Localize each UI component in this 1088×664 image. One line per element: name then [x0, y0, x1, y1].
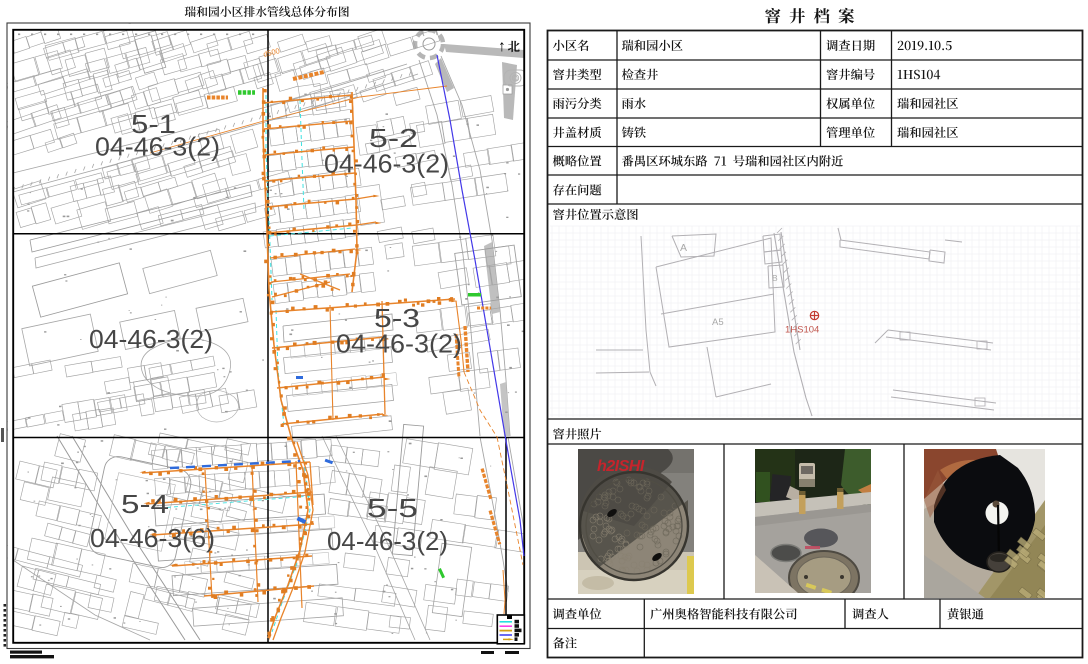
svg-text:5-5: 5-5 — [367, 495, 418, 523]
svg-text:04-46-3(2): 04-46-3(2) — [327, 528, 448, 556]
svg-text:1HS104: 1HS104 — [785, 325, 819, 336]
svg-text:04-46-3(2): 04-46-3(2) — [324, 151, 449, 179]
svg-text:5-4: 5-4 — [121, 491, 169, 519]
svg-text:A5: A5 — [712, 317, 724, 328]
svg-text:A: A — [680, 242, 687, 254]
svg-text:h2ISHI: h2ISHI — [597, 458, 645, 475]
svg-text:04-46-3(2): 04-46-3(2) — [336, 331, 462, 359]
svg-text:B: B — [772, 273, 778, 283]
svg-text:d500: d500 — [262, 46, 280, 59]
svg-text:5-2: 5-2 — [369, 125, 418, 153]
svg-text:04-46-3(2): 04-46-3(2) — [89, 326, 213, 354]
svg-text:↑: ↑ — [498, 38, 506, 55]
svg-text:04-46-3(6): 04-46-3(6) — [90, 525, 215, 553]
svg-text:5-3: 5-3 — [374, 305, 420, 333]
svg-text:04-46-3(2): 04-46-3(2) — [95, 134, 220, 162]
